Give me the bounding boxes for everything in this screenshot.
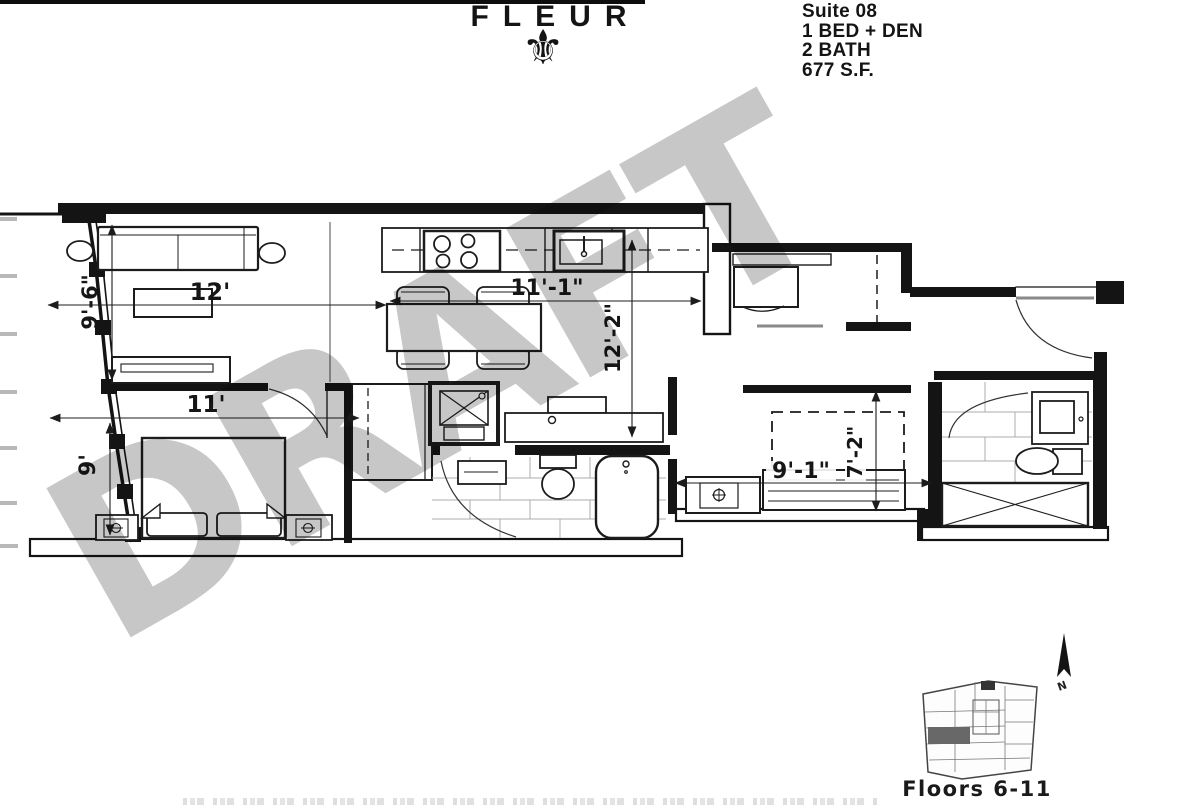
bathtub — [596, 456, 658, 538]
floorplan-sheet: FLEUR ⚜ Suite 08 1 BED + DEN 2 BATH 677 … — [0, 0, 1200, 805]
north-arrow-icon: N — [1056, 633, 1071, 694]
suite-baths: 2 BATH — [802, 41, 923, 61]
keyplan-core — [981, 681, 995, 690]
sofa — [98, 227, 258, 270]
keyplan-caption: Floors 6-11 — [902, 777, 1052, 801]
side-table — [67, 241, 93, 261]
truncated-disclaimer-text — [183, 798, 878, 805]
keyplan-suite-highlight — [928, 727, 970, 744]
dim-living-width: 12' — [190, 278, 231, 306]
dim-den-depth: 7'-2" — [843, 426, 867, 479]
suite-info: Suite 08 1 BED + DEN 2 BATH 677 S.F. — [802, 2, 923, 80]
suite-number: Suite 08 — [802, 2, 923, 22]
suite-area: 677 S.F. — [802, 61, 923, 81]
bath2-vanity — [1032, 392, 1088, 444]
keyplan: N Floors 6-11 — [902, 633, 1071, 801]
dim-living-depth: 9'-6" — [78, 274, 102, 329]
entry-door — [1016, 298, 1094, 358]
floor-plan-drawing: 12' 11'-1" 9'-6" 12'-2" 11' 9' 9'-1" 7'-… — [0, 0, 1200, 805]
side-table — [259, 243, 285, 263]
shower — [942, 483, 1088, 526]
bathroom-2 — [942, 382, 1092, 526]
den-nightstand — [686, 477, 760, 513]
suite-type: 1 BED + DEN — [802, 22, 923, 42]
bath2-toilet — [1016, 448, 1082, 474]
balcony-divider-stubs — [0, 219, 18, 546]
dim-den-width: 9'-1" — [772, 459, 830, 484]
north-label: N — [1056, 678, 1069, 693]
bath2-door-arc — [949, 393, 1028, 438]
fleur-de-lis-icon: ⚜ — [498, 22, 588, 74]
